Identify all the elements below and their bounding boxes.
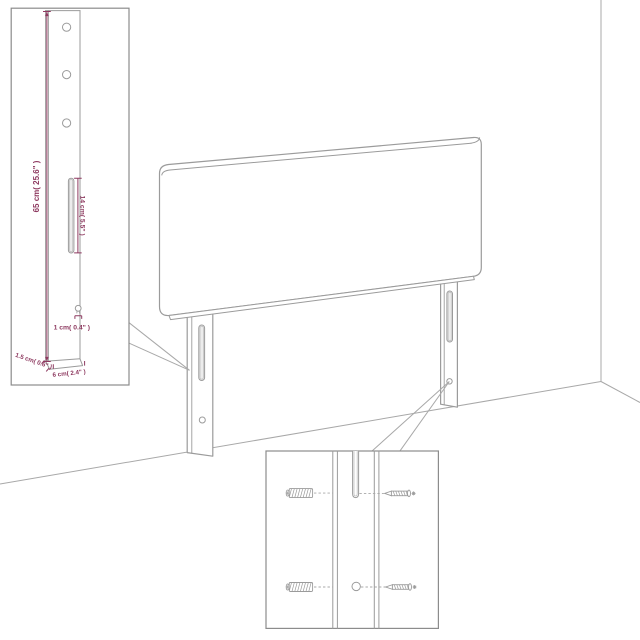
left-leg-screw-hole xyxy=(199,417,205,423)
callout-line-leg-lower xyxy=(129,343,189,370)
callout-line-hardware-right xyxy=(400,382,450,452)
diagram-svg: 65 cm( 25.6" ) 14 cm( 5.5" ) 1 cm( 0.4" … xyxy=(0,0,640,640)
inset-leg-hole-1 xyxy=(63,23,71,31)
callout-line-hardware-left xyxy=(372,382,450,452)
left-mounting-leg xyxy=(187,309,213,457)
floor-wall-line-right xyxy=(601,382,640,403)
slot-dimension-label: 14 cm( 5.5" ) xyxy=(79,195,86,235)
headboard-panel-face xyxy=(160,137,482,315)
callout-lines xyxy=(129,323,449,451)
detail-slot xyxy=(353,451,359,498)
hardware-detail-inset xyxy=(266,451,438,628)
height-dimension-label: 65 cm( 25.6" ) xyxy=(32,160,41,212)
right-leg-slot-inner xyxy=(448,292,451,341)
inset-leg-slot-inner xyxy=(70,179,73,251)
inset-keyhole-slot xyxy=(75,305,81,311)
leg-dimension-inset: 65 cm( 25.6" ) 14 cm( 5.5" ) 1 cm( 0.4" … xyxy=(11,8,129,385)
inset-leg-hole-2 xyxy=(63,71,71,79)
product-diagram: 65 cm( 25.6" ) 14 cm( 5.5" ) 1 cm( 0.4" … xyxy=(0,0,640,640)
confirmat-screw-icon-bottom xyxy=(286,583,312,592)
confirmat-screw-icon-top xyxy=(286,489,312,498)
hole-dimension-label: 1 cm( 0.4" ) xyxy=(54,325,90,332)
inset-leg-hole-3 xyxy=(63,119,71,127)
left-leg-slot-inner xyxy=(200,326,203,379)
headboard-panel xyxy=(160,137,482,319)
detail-screw-hole xyxy=(352,582,360,590)
callout-line-leg-upper xyxy=(129,323,189,371)
